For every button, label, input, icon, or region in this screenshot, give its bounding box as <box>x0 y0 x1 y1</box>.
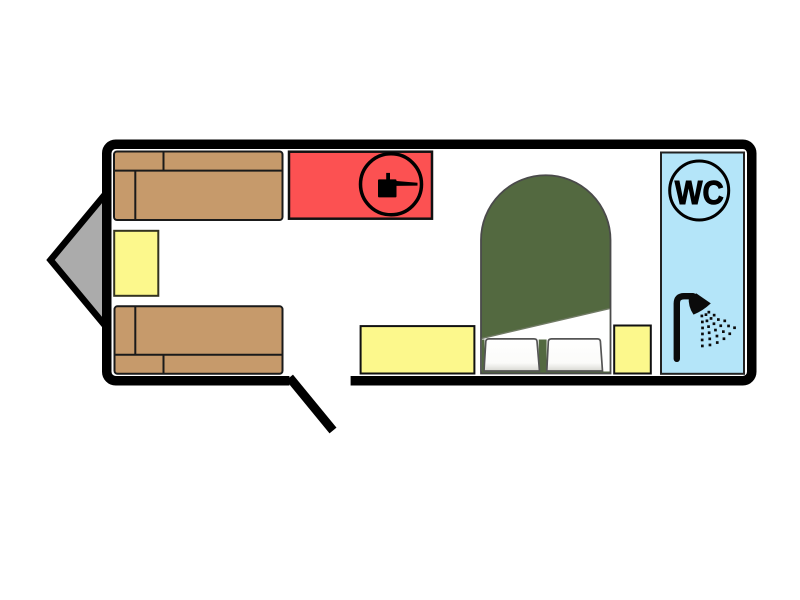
svg-text:WC: WC <box>675 174 724 211</box>
